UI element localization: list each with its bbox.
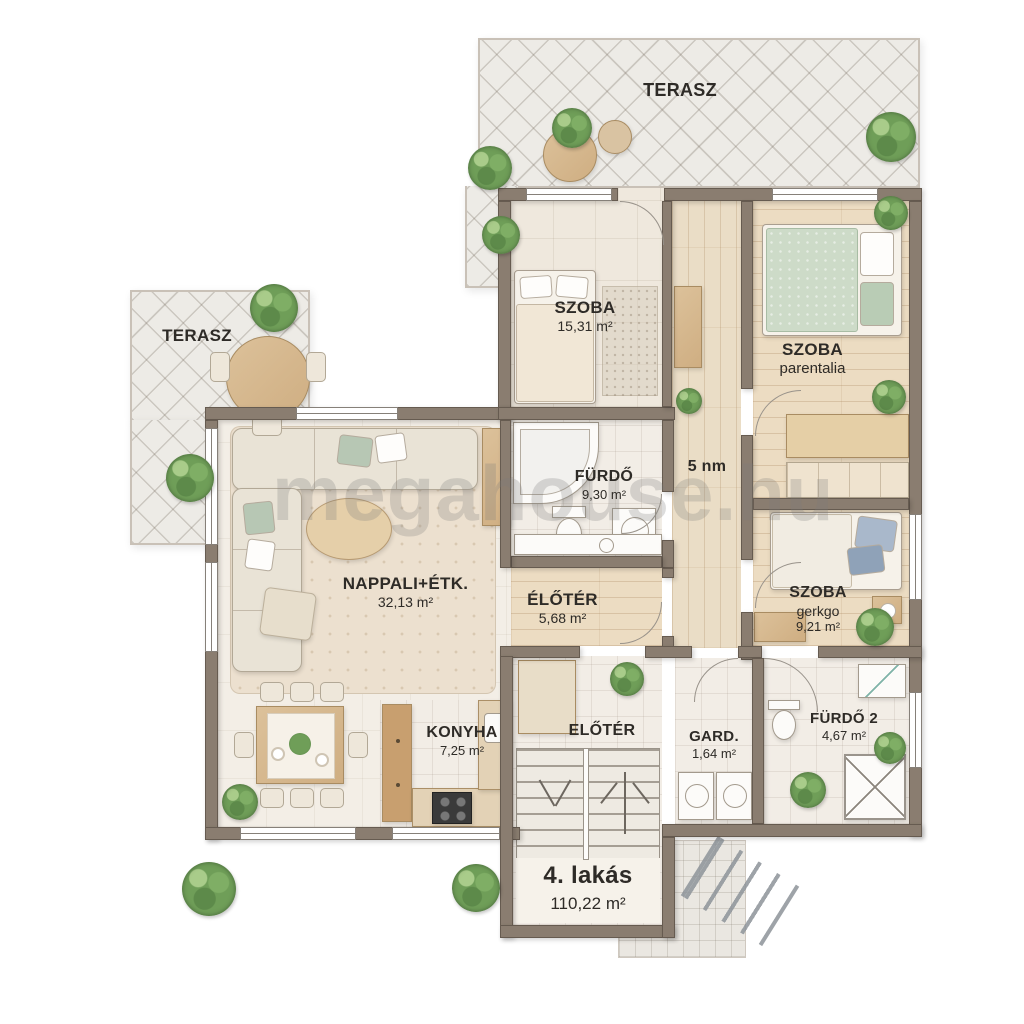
title-block: 4. lakás 110,22 m²: [516, 862, 660, 914]
room-subtitle: parentalia: [745, 360, 880, 378]
wall: [738, 646, 762, 658]
window: [772, 188, 878, 201]
room-name: KONYHA: [408, 724, 516, 743]
stair-stringer: [583, 748, 589, 860]
wall: [818, 646, 922, 658]
plant: [222, 784, 258, 820]
room-area: 9,21 m²: [752, 619, 884, 634]
master-bed-blanket: [766, 228, 858, 332]
room-area: 32,13 m²: [318, 594, 493, 611]
plant: [468, 146, 512, 190]
dining-table: [256, 706, 344, 784]
plant: [872, 380, 906, 414]
dining-chair: [290, 788, 314, 808]
kitchen-tall-cabinet: [382, 704, 412, 822]
room-label-eloter1: ÉLŐTÉR 5,68 m²: [500, 590, 625, 627]
mirror-cabinet: [858, 664, 906, 698]
wall: [662, 540, 674, 568]
wall: [500, 656, 513, 938]
room-name: NAPPALI+ÉTK.: [318, 574, 493, 594]
wall: [500, 925, 675, 938]
terrace-top-stool: [598, 120, 632, 154]
room-name: FÜRDŐ: [548, 468, 660, 487]
plant: [874, 196, 908, 230]
hall-size-label: 5 nm: [672, 458, 742, 477]
cabinet-handle: [396, 739, 400, 743]
window: [909, 514, 922, 600]
plant: [552, 108, 592, 148]
plant: [790, 772, 826, 808]
gerkgo-pillow-blue: [846, 544, 885, 576]
sofa-pillow: [244, 538, 276, 572]
bed-pillow: [519, 275, 552, 299]
room-name: SZOBA: [752, 584, 884, 603]
gard-dryer: [716, 772, 752, 820]
wall: [645, 646, 692, 658]
terrace-top-label: TERASZ: [560, 80, 800, 101]
dryer-drum: [723, 784, 747, 808]
room-area: 7,25 m²: [408, 743, 516, 758]
plate: [315, 753, 329, 767]
room-label-szoba1: SZOBA 15,31 m²: [515, 298, 655, 335]
dining-chair: [320, 788, 344, 808]
gard-washer: [678, 772, 714, 820]
plant: [866, 112, 916, 162]
washer-drum: [685, 784, 709, 808]
plant: [250, 284, 298, 332]
dining-chair: [348, 732, 368, 758]
entry-threshold: [618, 188, 664, 201]
room-name: ÉLŐTÉR: [500, 590, 625, 610]
dining-chair: [234, 732, 254, 758]
plant: [166, 454, 214, 502]
bed-pillow: [555, 275, 589, 300]
apartment-title: 4. lakás: [516, 862, 660, 890]
terrace-left-label: TERASZ: [142, 326, 252, 346]
sink-basin: [599, 538, 614, 553]
room-label-gerkgo: SZOBA gerkgo 9,21 m²: [752, 584, 884, 635]
room-label-parentalia: SZOBA parentalia: [745, 340, 880, 378]
terrace-chair: [306, 352, 326, 382]
room-name: ELŐTÉR: [548, 722, 656, 741]
plant: [182, 862, 236, 916]
terrace-chair: [210, 352, 230, 382]
window: [526, 188, 612, 201]
wall: [498, 407, 675, 420]
room-area: 4,67 m²: [790, 728, 898, 743]
room-name: FÜRDŐ 2: [790, 710, 898, 728]
plant: [482, 216, 520, 254]
wall: [662, 568, 674, 578]
window: [909, 692, 922, 768]
room-label-hall: 5 nm: [672, 458, 742, 477]
floorplan-page: { "watermark": "megahouse.hu", "title_bl…: [0, 0, 1024, 1024]
room-label-nappali: NAPPALI+ÉTK. 32,13 m²: [318, 574, 493, 611]
dining-chair: [260, 682, 284, 702]
centerpiece-plant: [289, 733, 311, 755]
dining-chair: [260, 788, 284, 808]
plant: [610, 662, 644, 696]
window: [392, 827, 500, 840]
cooktop: [432, 792, 472, 824]
plant: [452, 864, 500, 912]
wall: [511, 556, 662, 568]
wall: [662, 837, 675, 938]
wall: [662, 201, 672, 407]
sofa-pillow-green: [242, 501, 275, 536]
dining-chair: [320, 682, 344, 702]
room-label-furdo2: FÜRDŐ 2 4,67 m²: [790, 710, 898, 743]
plate: [271, 747, 285, 761]
window: [240, 827, 356, 840]
room-label-furdo1: FÜRDŐ 9,30 m²: [548, 468, 660, 502]
terrace-left-label-wrap: TERASZ: [142, 326, 252, 346]
room-area: 9,30 m²: [548, 487, 660, 502]
shower: [844, 754, 906, 820]
room-area: 1,64 m²: [672, 746, 756, 761]
room-label-konyha: KONYHA 7,25 m²: [408, 724, 516, 758]
pouf: [259, 587, 317, 642]
master-pillow: [860, 232, 894, 276]
room-subtitle: gerkgo: [752, 603, 884, 620]
master-pillow: [860, 282, 894, 326]
hall-floor: [672, 201, 741, 648]
room-label-eloter2: ELŐTÉR: [548, 722, 656, 741]
room-area: 5,68 m²: [500, 610, 625, 627]
dining-chair: [290, 682, 314, 702]
room-area: 15,31 m²: [515, 318, 655, 335]
apartment-area: 110,22 m²: [516, 894, 660, 914]
room-label-gard: GARD. 1,64 m²: [672, 728, 756, 761]
wall: [662, 824, 922, 837]
room-name: GARD.: [672, 728, 756, 746]
window: [205, 562, 218, 652]
plant: [676, 388, 702, 414]
terrace-top-label-wrap: TERASZ: [560, 80, 800, 101]
room-name: SZOBA: [745, 340, 880, 360]
wardrobe: [674, 286, 702, 368]
cabinet-handle: [396, 783, 400, 787]
stair-arrow-stem: [624, 772, 626, 834]
window: [296, 407, 398, 420]
room-name: SZOBA: [515, 298, 655, 318]
